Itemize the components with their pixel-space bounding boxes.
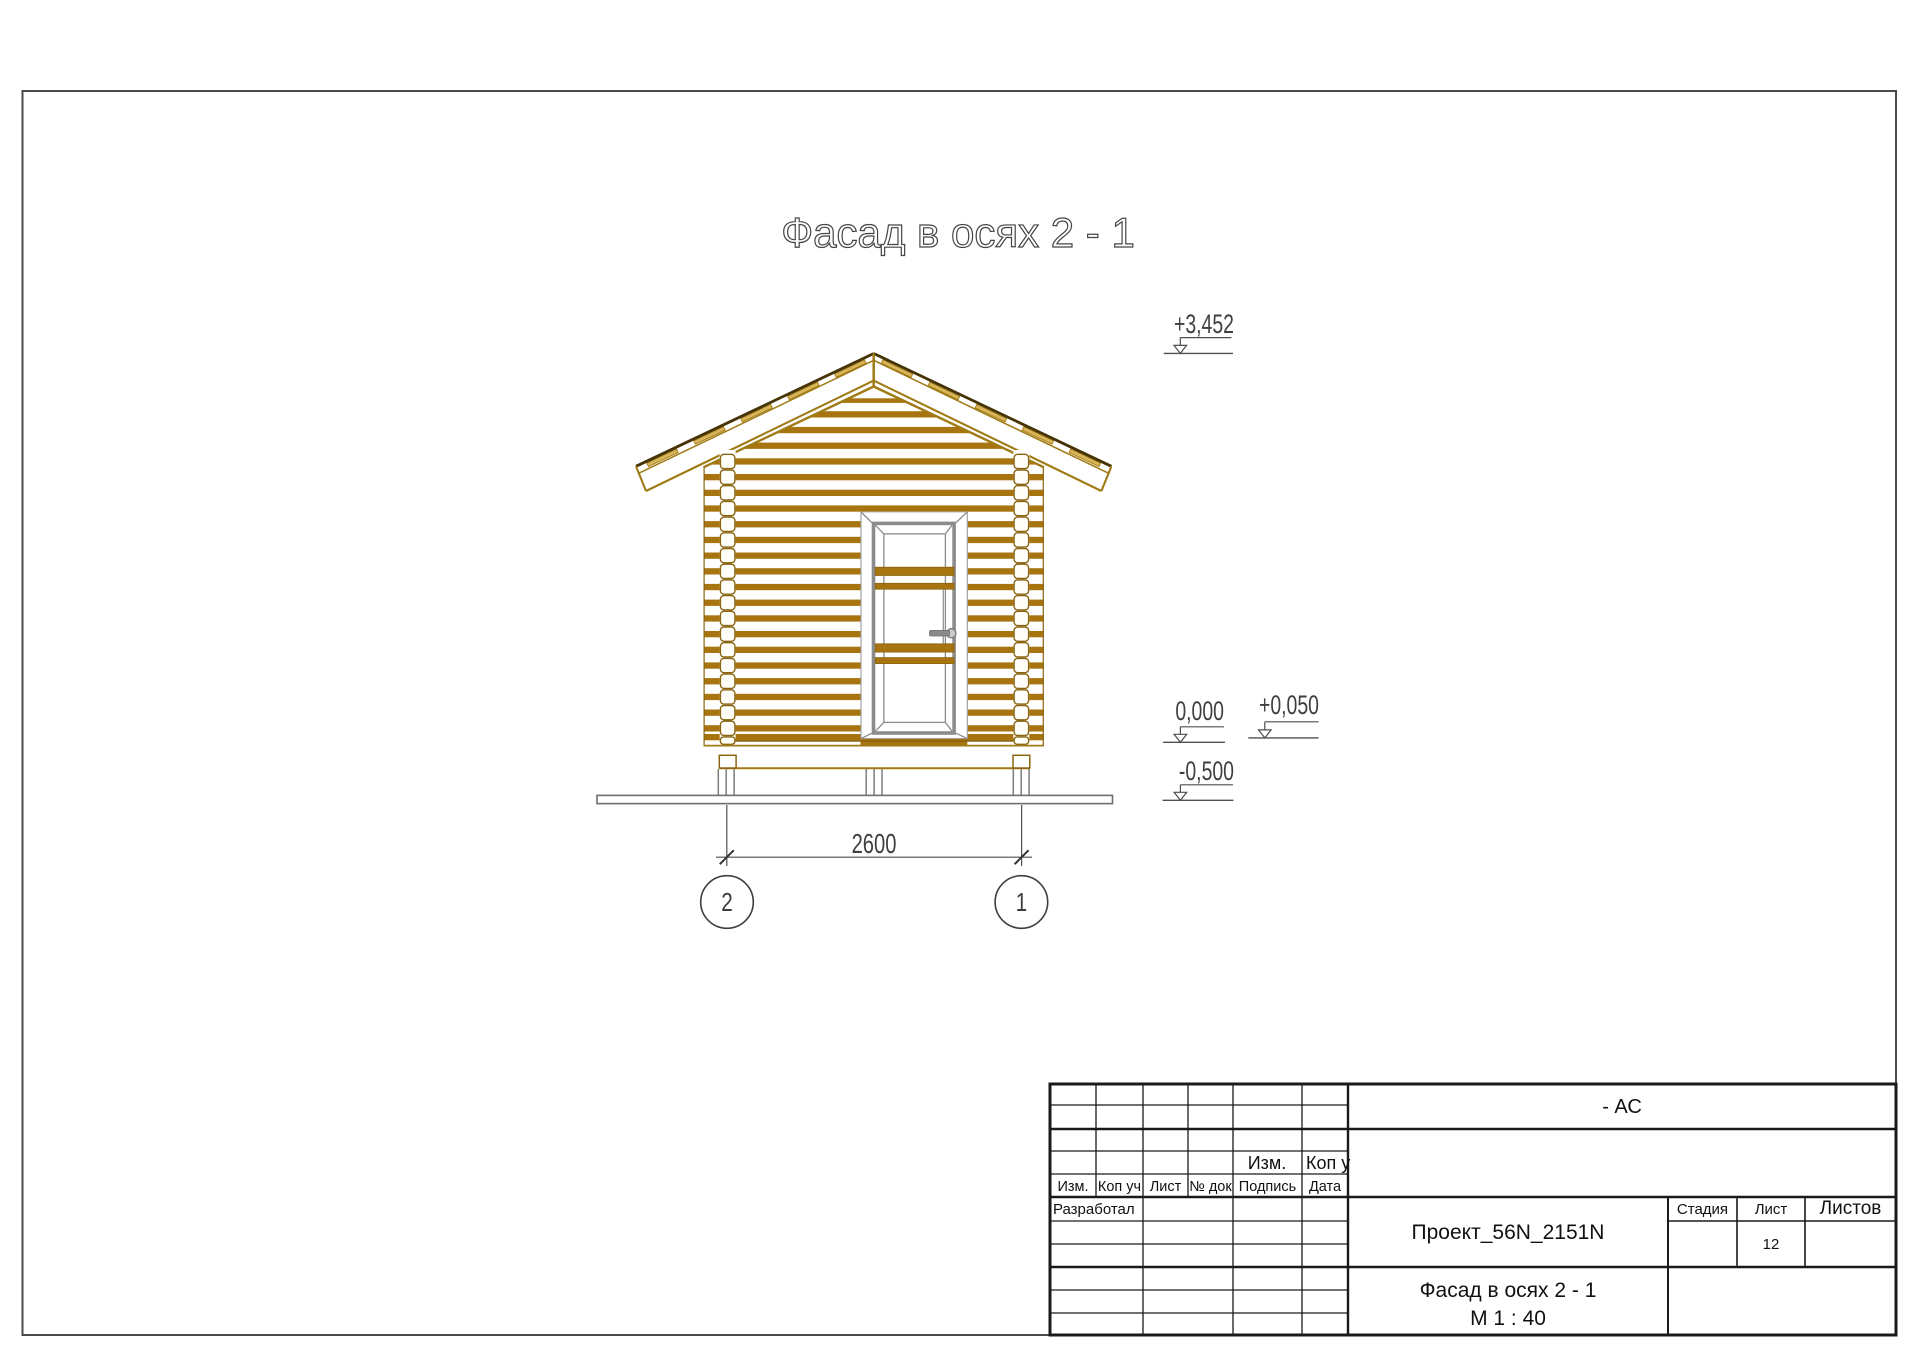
svg-text:Лист: Лист [1755,1201,1788,1218]
svg-text:Лист: Лист [1150,1179,1182,1195]
svg-text:Фасад в осях 2 - 1: Фасад в осях 2 - 1 [781,209,1135,256]
svg-text:Стадия: Стадия [1677,1201,1728,1218]
svg-text:Коп у: Коп у [1306,1153,1350,1173]
svg-text:№ док: № док [1189,1179,1232,1195]
svg-text:+0,050: +0,050 [1259,690,1319,720]
svg-text:+3,452: +3,452 [1174,309,1234,339]
svg-text:Коп уч: Коп уч [1098,1179,1141,1195]
svg-text:Разработал: Разработал [1053,1201,1135,1218]
svg-text:0,000: 0,000 [1175,696,1224,726]
svg-text:12: 12 [1763,1236,1780,1253]
svg-text:1: 1 [1016,888,1028,917]
svg-text:2600: 2600 [852,829,897,860]
svg-text:Изм.: Изм. [1057,1179,1088,1195]
svg-text:Дата: Дата [1309,1179,1342,1195]
svg-text:Проект_56N_2151N: Проект_56N_2151N [1412,1221,1605,1244]
svg-text:Листов: Листов [1820,1198,1882,1219]
svg-text:М 1 : 40: М 1 : 40 [1470,1307,1546,1330]
svg-text:Фасад в осях 2 - 1: Фасад в осях 2 - 1 [1420,1279,1597,1302]
svg-text:Подпись: Подпись [1239,1179,1296,1195]
svg-text:-0,500: -0,500 [1179,756,1234,786]
svg-text:- АС: - АС [1602,1096,1642,1118]
svg-text:Изм.: Изм. [1248,1153,1287,1173]
svg-text:2: 2 [721,888,733,917]
